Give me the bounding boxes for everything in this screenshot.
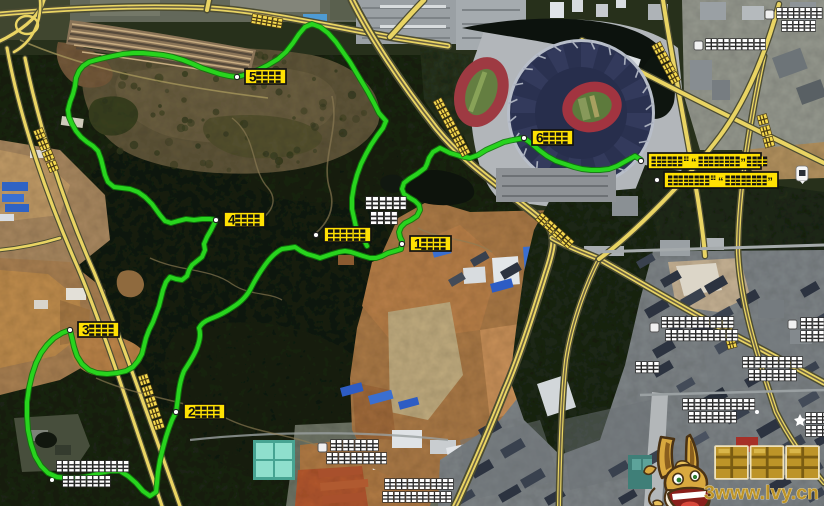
svg-text:”: ” [740,157,746,169]
svg-text:2: 2 [188,405,196,420]
svg-text:3: 3 [82,323,90,338]
svg-text:1: 1 [414,237,422,252]
svg-text:“: “ [691,157,697,169]
svg-text:4: 4 [228,213,236,228]
svg-text:3www.lvy.cn: 3www.lvy.cn [704,482,819,504]
svg-text:6: 6 [536,131,544,146]
svg-text:“: “ [718,176,724,188]
svg-text:”: ” [767,176,773,188]
svg-text:5: 5 [249,70,257,85]
